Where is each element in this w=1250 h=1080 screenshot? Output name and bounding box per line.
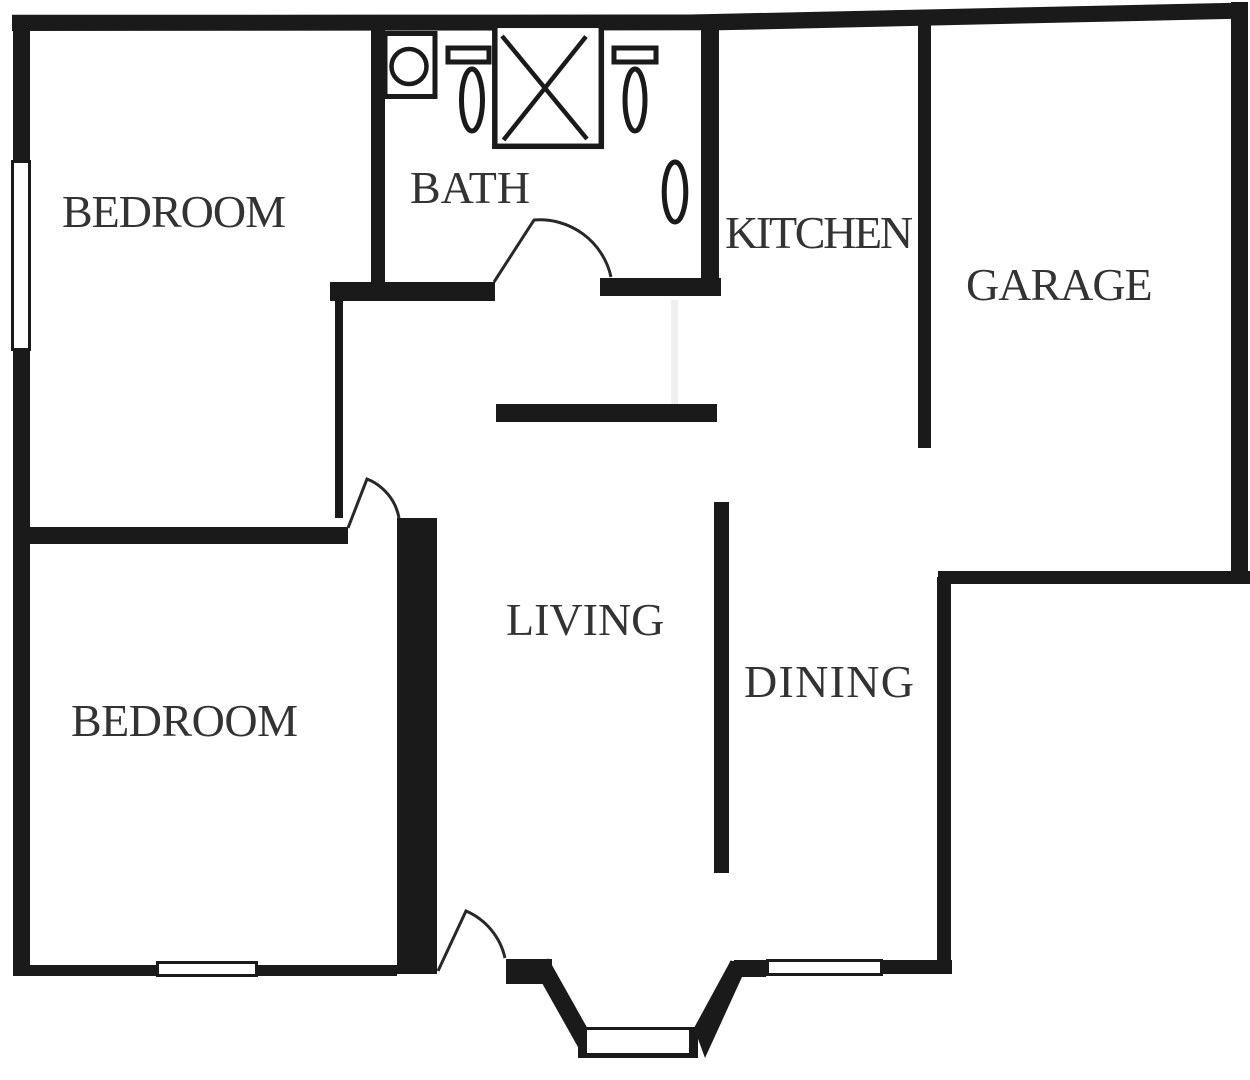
svg-text:GARAGE: GARAGE <box>966 259 1152 310</box>
svg-text:BATH: BATH <box>410 162 530 213</box>
svg-text:BEDROOM: BEDROOM <box>71 695 298 746</box>
svg-text:LIVING: LIVING <box>506 594 664 645</box>
svg-text:DINING: DINING <box>744 656 915 707</box>
svg-text:BEDROOM: BEDROOM <box>62 186 285 237</box>
svg-text:KITCHEN: KITCHEN <box>725 207 913 258</box>
